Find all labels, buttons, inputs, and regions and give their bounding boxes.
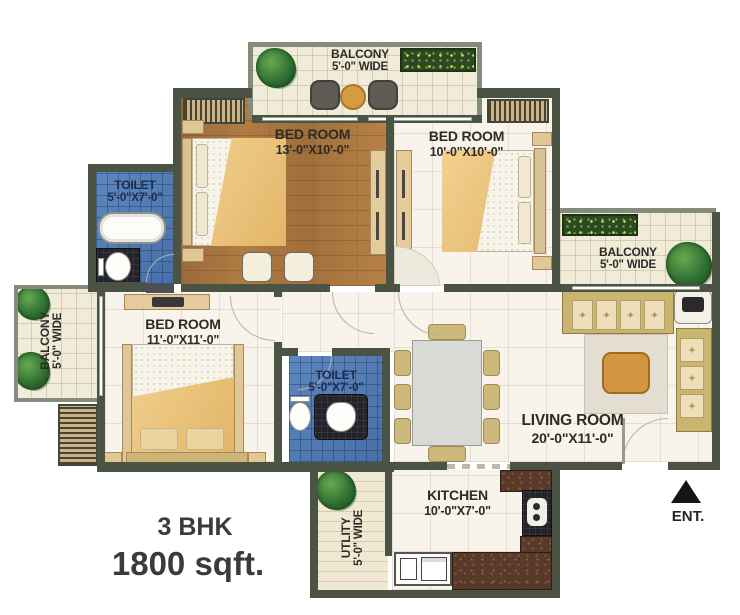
- dining-chair-icon: [483, 384, 500, 410]
- wall: [552, 462, 560, 598]
- tv-icon: [682, 297, 704, 312]
- balcony-table-icon: [340, 84, 366, 110]
- burner-icon: [533, 503, 540, 510]
- nightstand-icon: [532, 256, 552, 270]
- sofa-cushion-icon: [680, 366, 704, 390]
- wall: [181, 284, 330, 292]
- wall: [88, 172, 96, 290]
- wall: [173, 88, 252, 98]
- wall: [173, 172, 181, 284]
- door-mat-icon: [146, 284, 174, 293]
- sink-icon: [400, 558, 417, 580]
- wall: [382, 348, 390, 470]
- floor-plan: ENT. BALCONY 5'-0" WIDE BED ROOM 13'-0"X…: [0, 0, 740, 615]
- nightstand-icon: [532, 132, 552, 146]
- wall: [310, 462, 318, 598]
- sofa-cushion-icon: [680, 338, 704, 362]
- wc-tank-icon: [98, 258, 104, 276]
- bathtub-icon: [98, 212, 166, 244]
- wc-icon: [105, 252, 131, 281]
- wall: [394, 462, 447, 470]
- ac-ledge-grille-icon: [58, 404, 98, 466]
- wall: [712, 212, 720, 470]
- washbasin-icon: [326, 402, 356, 432]
- planter-box-icon: [562, 214, 638, 236]
- pillow-icon: [186, 428, 224, 450]
- plan-title: 3 BHK: [140, 513, 250, 542]
- burner-icon: [533, 514, 540, 521]
- kitchen-counter-icon: [452, 552, 552, 590]
- wall: [14, 285, 18, 402]
- balcony-left-label: BALCONY 5'-0" WIDE: [38, 286, 66, 396]
- bedroom-top-right-label: BED ROOM 10'-0"X10'-0": [404, 128, 529, 159]
- sofa-cushion-icon: [620, 300, 641, 330]
- wardrobe-handle-icon: [376, 212, 379, 240]
- balcony-right-label: BALCONY 5'-0" WIDE: [578, 245, 678, 273]
- dining-table-icon: [412, 340, 482, 446]
- wardrobe-handle-icon: [402, 170, 405, 198]
- living-room-label: LIVING ROOM 20'-0"X11'-0": [505, 412, 640, 447]
- pillow-icon: [518, 202, 531, 244]
- wall: [14, 398, 97, 402]
- wall: [477, 42, 482, 118]
- wall: [281, 348, 298, 356]
- bed-rail-icon: [122, 344, 132, 466]
- bed-rail-icon: [234, 344, 244, 466]
- pillow-icon: [196, 192, 208, 236]
- dining-chair-icon: [394, 418, 411, 444]
- window-icon: [368, 117, 472, 121]
- pillow-icon: [196, 144, 208, 188]
- dining-chair-icon: [394, 384, 411, 410]
- dining-chair-icon: [483, 418, 500, 444]
- wall: [386, 115, 394, 292]
- wall: [444, 284, 560, 292]
- wall: [274, 342, 282, 472]
- window-icon: [99, 296, 103, 396]
- bedroom-top-left-label: BED ROOM 13'-0"X10'-0": [245, 126, 380, 157]
- wall: [477, 88, 560, 98]
- pillow-icon: [518, 156, 531, 198]
- wall: [173, 96, 181, 172]
- wall: [97, 462, 394, 472]
- wc-icon: [289, 402, 311, 431]
- entry-label: ENT.: [658, 508, 718, 525]
- wall: [668, 462, 720, 470]
- balcony-top-label: BALCONY 5'-0" WIDE: [300, 47, 420, 75]
- toilet-middle-label: TOILET 5'-0"X7'-0": [292, 368, 380, 396]
- window-grille-icon: [487, 99, 549, 123]
- sofa-cushion-icon: [572, 300, 593, 330]
- dining-chair-icon: [428, 446, 466, 462]
- balcony-chair-icon: [368, 80, 398, 110]
- window-icon: [572, 286, 700, 290]
- kitchen-label: KITCHEN 10'-0"X7'-0": [405, 487, 510, 518]
- chair-icon: [242, 252, 272, 282]
- wall: [394, 284, 400, 292]
- drainboard-icon: [421, 557, 447, 581]
- opening-threshold: [447, 464, 510, 469]
- nightstand-icon: [182, 248, 204, 262]
- bed-headboard-icon: [534, 148, 546, 254]
- wall: [88, 164, 181, 172]
- sofa-cushion-icon: [680, 394, 704, 418]
- nightstand-icon: [182, 120, 204, 134]
- wardrobe-handle-icon: [402, 212, 405, 240]
- wall: [510, 462, 622, 470]
- wall: [552, 92, 560, 292]
- pillow-icon: [140, 428, 178, 450]
- coffee-table-icon: [602, 352, 650, 394]
- wall: [560, 208, 716, 213]
- wall: [248, 42, 253, 118]
- plant-icon: [256, 48, 296, 88]
- wall: [385, 470, 392, 556]
- bed-headboard-icon: [182, 138, 192, 246]
- utility-label: UTLITY 5'-0" WIDE: [339, 483, 367, 593]
- tv-icon: [152, 297, 184, 307]
- sofa-cushion-icon: [596, 300, 617, 330]
- window-icon: [262, 117, 358, 121]
- dining-chair-icon: [483, 350, 500, 376]
- toilet-top-label: TOILET 5'-0"X7'-0": [96, 178, 174, 206]
- entry-arrow-icon: [671, 480, 701, 503]
- bedroom-bottom-label: BED ROOM 11'-0"X11'-0": [118, 316, 248, 347]
- wall: [274, 287, 282, 297]
- dining-chair-icon: [394, 350, 411, 376]
- balcony-chair-icon: [310, 80, 340, 110]
- chair-icon: [284, 252, 314, 282]
- wardrobe-handle-icon: [376, 170, 379, 198]
- plan-area: 1800 sqft.: [93, 545, 283, 583]
- sofa-cushion-icon: [644, 300, 665, 330]
